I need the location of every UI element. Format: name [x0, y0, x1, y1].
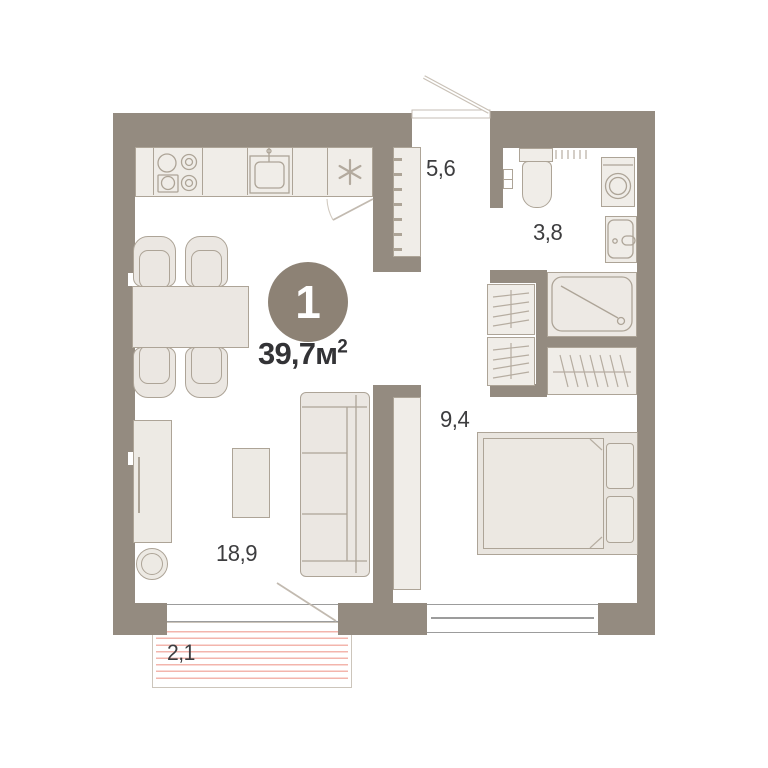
window-frame-line — [431, 617, 594, 619]
toilet-tank-icon — [519, 148, 553, 162]
wall-segment — [373, 147, 393, 256]
wall-segment — [113, 113, 412, 147]
chair-seat — [191, 345, 222, 384]
wall-segment — [637, 111, 655, 635]
shelf-tick — [394, 158, 402, 161]
wall-segment — [113, 113, 135, 605]
floor-plan: 2,1 — [0, 0, 768, 768]
dining-chair — [185, 236, 228, 287]
shelf-tick — [394, 218, 402, 221]
wall-segment — [393, 385, 421, 397]
shelf-unit-icon — [487, 284, 535, 335]
bathroom-area-label: 3,8 — [533, 219, 562, 246]
wall-segment — [113, 603, 167, 635]
chair-seat — [139, 345, 170, 384]
counter-divider — [202, 148, 203, 195]
coffee-table-icon — [232, 448, 270, 518]
chair-seat — [139, 250, 170, 289]
shelf-tick — [394, 203, 402, 206]
sofa-icon — [300, 392, 370, 577]
wall-segment — [373, 256, 421, 272]
washing-machine-icon — [601, 157, 635, 207]
wall-segment — [373, 385, 393, 608]
bedroom-area-label: 9,4 — [440, 406, 469, 433]
dining-table — [132, 286, 249, 348]
bedroom-wardrobe-icon — [393, 397, 421, 590]
shelf-tick — [394, 188, 402, 191]
balcony-area-label: 2,1 — [167, 640, 195, 666]
shelf-tick — [394, 248, 402, 251]
dining-chair — [133, 347, 176, 398]
shelf-tick — [394, 173, 402, 176]
fridge-icon — [327, 147, 373, 197]
cabinet-line — [138, 457, 140, 513]
apartment-area-label: 39,7м2 — [258, 336, 347, 372]
hall-wardrobe-icon — [393, 147, 421, 257]
wall-segment — [490, 148, 503, 208]
dining-chair — [185, 347, 228, 398]
area-power: 2 — [337, 337, 347, 358]
dining-chair — [133, 236, 176, 287]
counter-divider — [292, 148, 293, 195]
pillow — [606, 496, 634, 543]
chair-seat — [191, 250, 222, 289]
stove-icon — [153, 147, 202, 197]
area-value: 39,7 — [258, 336, 315, 371]
badge-number: 1 — [295, 275, 321, 329]
flush-line — [504, 179, 512, 180]
toilet-flush-icon — [503, 169, 513, 189]
living-window — [167, 604, 338, 622]
towel-rail-icon — [553, 147, 591, 157]
pillow — [606, 443, 634, 489]
tv-cabinet-icon — [133, 420, 172, 543]
apartment-rooms-badge: 1 — [268, 262, 348, 342]
toilet-icon — [522, 161, 552, 208]
kitchen-sink-icon — [247, 147, 292, 197]
balcony: 2,1 — [152, 622, 352, 688]
bathroom-sink-icon — [605, 216, 637, 263]
hallway-area-label: 5,6 — [426, 155, 455, 182]
closet-hangers-icon — [547, 347, 637, 395]
area-unit: м — [315, 336, 337, 371]
wall-segment — [547, 337, 637, 347]
side-table-inner — [141, 553, 163, 575]
living-area-label: 18,9 — [216, 540, 257, 567]
wall-segment — [536, 270, 547, 397]
bedroom-window — [427, 604, 600, 633]
shelf-unit-icon — [487, 337, 535, 386]
bed-mattress — [483, 438, 604, 549]
shower-icon — [547, 272, 637, 337]
shelf-tick — [394, 233, 402, 236]
wall-segment — [490, 111, 655, 148]
